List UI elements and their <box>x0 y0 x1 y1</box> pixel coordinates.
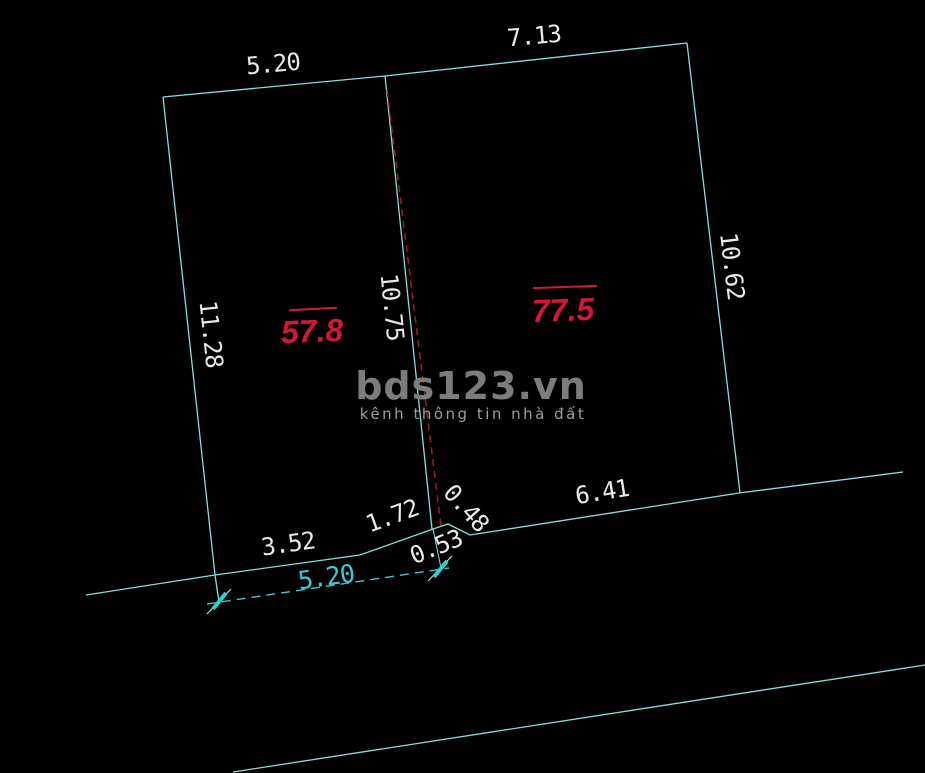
dim-right-side: 10.62 <box>716 231 748 301</box>
cad-site-plan: 5.20 7.13 11.28 10.75 10.62 3.52 1.72 0.… <box>0 0 925 773</box>
area-label-left: 57.8 <box>280 314 343 348</box>
watermark-brand: bds123.vn <box>355 364 587 408</box>
top-boundary-line <box>163 43 687 97</box>
dim-top-right-width: 7.13 <box>506 22 562 51</box>
road-line <box>233 665 925 772</box>
dim-top-left-width: 5.20 <box>245 50 301 79</box>
front-boundary-line <box>86 472 903 595</box>
watermark-tagline: kênh thông tin nhà đất <box>360 405 586 423</box>
dim-left-side: 11.28 <box>196 299 227 368</box>
dim-divider: 10.75 <box>377 272 408 341</box>
area-label-right: 77.5 <box>531 293 594 327</box>
dim-bottom-seg1: 3.52 <box>260 528 317 559</box>
dim-frontage-total: 5.20 <box>296 561 355 594</box>
